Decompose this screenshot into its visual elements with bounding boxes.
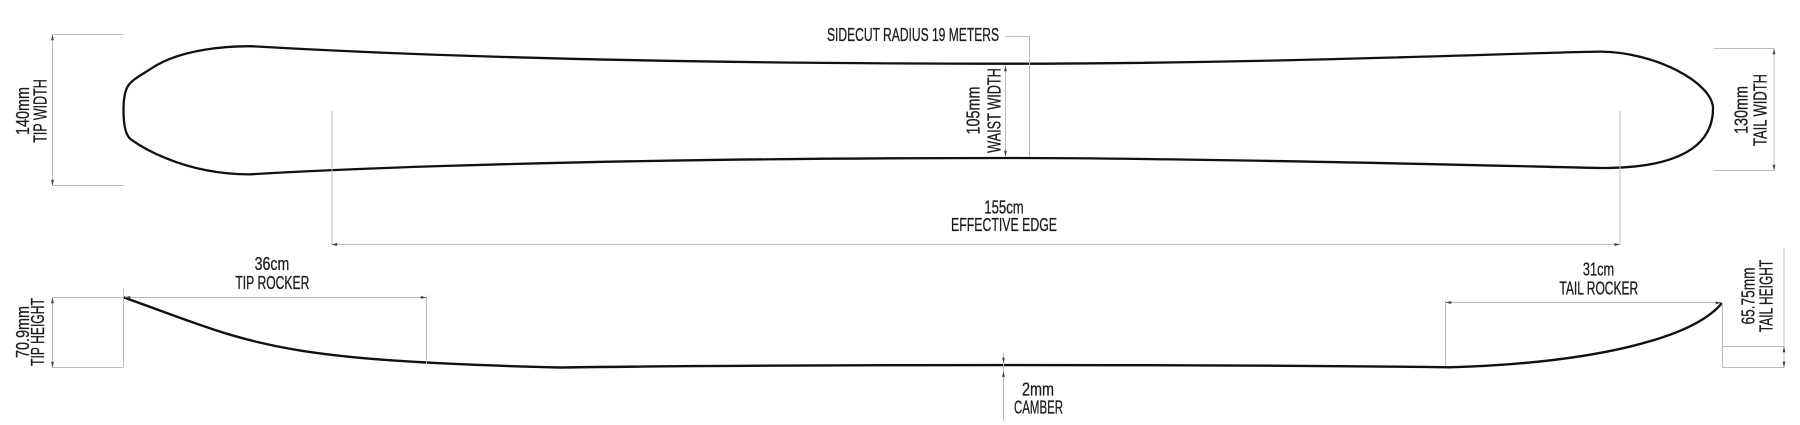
svg-text:WAIST WIDTH: WAIST WIDTH [984,68,1005,153]
svg-text:EFFECTIVE EDGE: EFFECTIVE EDGE [951,214,1057,235]
svg-text:TIP WIDTH: TIP WIDTH [30,79,51,143]
svg-text:TIP HEIGHT: TIP HEIGHT [27,298,48,366]
svg-text:SIDECUT RADIUS 19 METERS: SIDECUT RADIUS 19 METERS [827,24,999,45]
svg-text:TAIL ROCKER: TAIL ROCKER [1559,278,1638,299]
svg-text:CAMBER: CAMBER [1014,396,1063,417]
svg-text:TIP ROCKER: TIP ROCKER [235,272,309,293]
svg-text:31cm: 31cm [1583,258,1614,279]
svg-text:105mm: 105mm [963,87,984,135]
svg-text:TAIL HEIGHT: TAIL HEIGHT [1756,260,1777,332]
svg-text:TAIL WIDTH: TAIL WIDTH [1750,74,1771,146]
svg-text:130mm: 130mm [1731,86,1752,134]
